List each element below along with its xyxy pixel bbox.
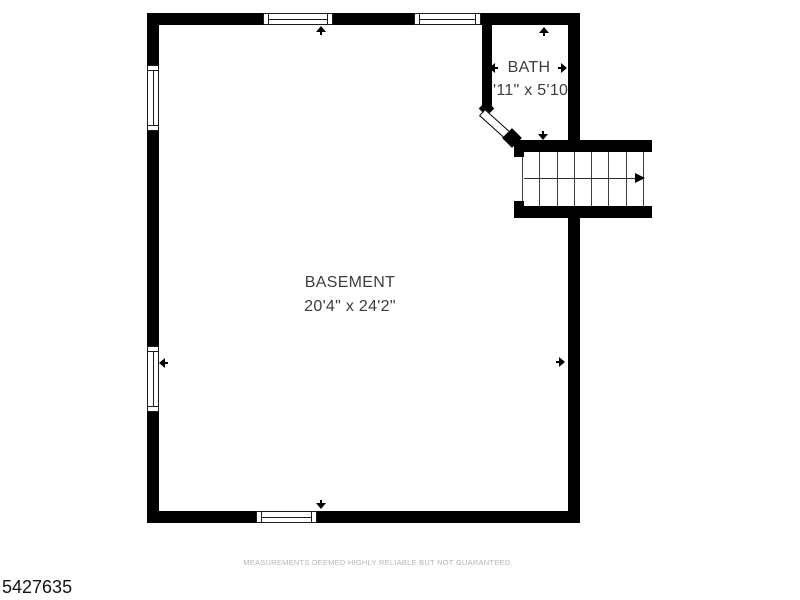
dim-arrow-stem: [495, 67, 498, 69]
window-icon: [414, 13, 481, 25]
dim-arrow-stem: [165, 362, 168, 364]
window-glass-line: [269, 19, 327, 20]
wall-stairs-bottom-lip: [514, 201, 524, 218]
window-glass-line: [420, 19, 475, 20]
dim-arrow-stem: [320, 500, 322, 503]
floor-plan-page: BASEMENT 20'4" x 24'2" BATH 3'11" x 5'10…: [0, 0, 800, 600]
dim-arrow-right-icon: [561, 63, 567, 73]
stair-tread: [609, 152, 626, 206]
dim-arrow-stem: [320, 32, 322, 35]
dim-arrow-stem: [542, 131, 544, 134]
wall-top: [147, 13, 580, 25]
wall-right-lower: [568, 206, 580, 523]
window-icon: [263, 13, 333, 25]
wall-stairs-top: [514, 140, 652, 152]
dim-arrow-right-icon: [559, 357, 565, 367]
room-dimensions-basement: 20'4" x 24'2": [250, 298, 450, 316]
dim-arrow-down-icon: [538, 134, 548, 140]
stair-tread: [575, 152, 592, 206]
window-icon: [256, 511, 317, 523]
window-glass-line: [262, 517, 311, 518]
stair-tread: [558, 152, 575, 206]
dim-arrow-stem: [558, 67, 561, 69]
stair-tread: [540, 152, 557, 206]
wall-stairs-bottom: [514, 206, 652, 218]
dim-arrow-stem: [543, 33, 545, 36]
window-frame-line: [148, 406, 158, 407]
wall-bottom: [147, 511, 580, 523]
wall-right-bath: [568, 13, 580, 152]
stair-tread: [592, 152, 609, 206]
dim-arrow-stem: [556, 361, 559, 363]
window-icon: [147, 346, 159, 412]
dim-arrow-down-icon: [316, 503, 326, 509]
stairs-direction-arrow-icon: [635, 173, 645, 183]
window-glass-line: [153, 71, 154, 125]
window-glass-line: [153, 352, 154, 406]
window-icon: [147, 65, 159, 131]
measurement-disclaimer: MEASUREMENTS DEEMED HIGHLY RELIABLE BUT …: [178, 558, 578, 567]
stairs-direction-line: [524, 178, 636, 179]
wall-bath-left: [482, 13, 492, 110]
stairs-treads: [522, 152, 644, 206]
listing-id: 5427635: [2, 577, 72, 598]
window-frame-line: [327, 14, 328, 24]
window-frame-line: [311, 512, 312, 522]
window-frame-line: [475, 14, 476, 24]
stair-tread: [523, 152, 540, 206]
window-frame-line: [148, 125, 158, 126]
room-label-basement: BASEMENT: [250, 274, 450, 292]
